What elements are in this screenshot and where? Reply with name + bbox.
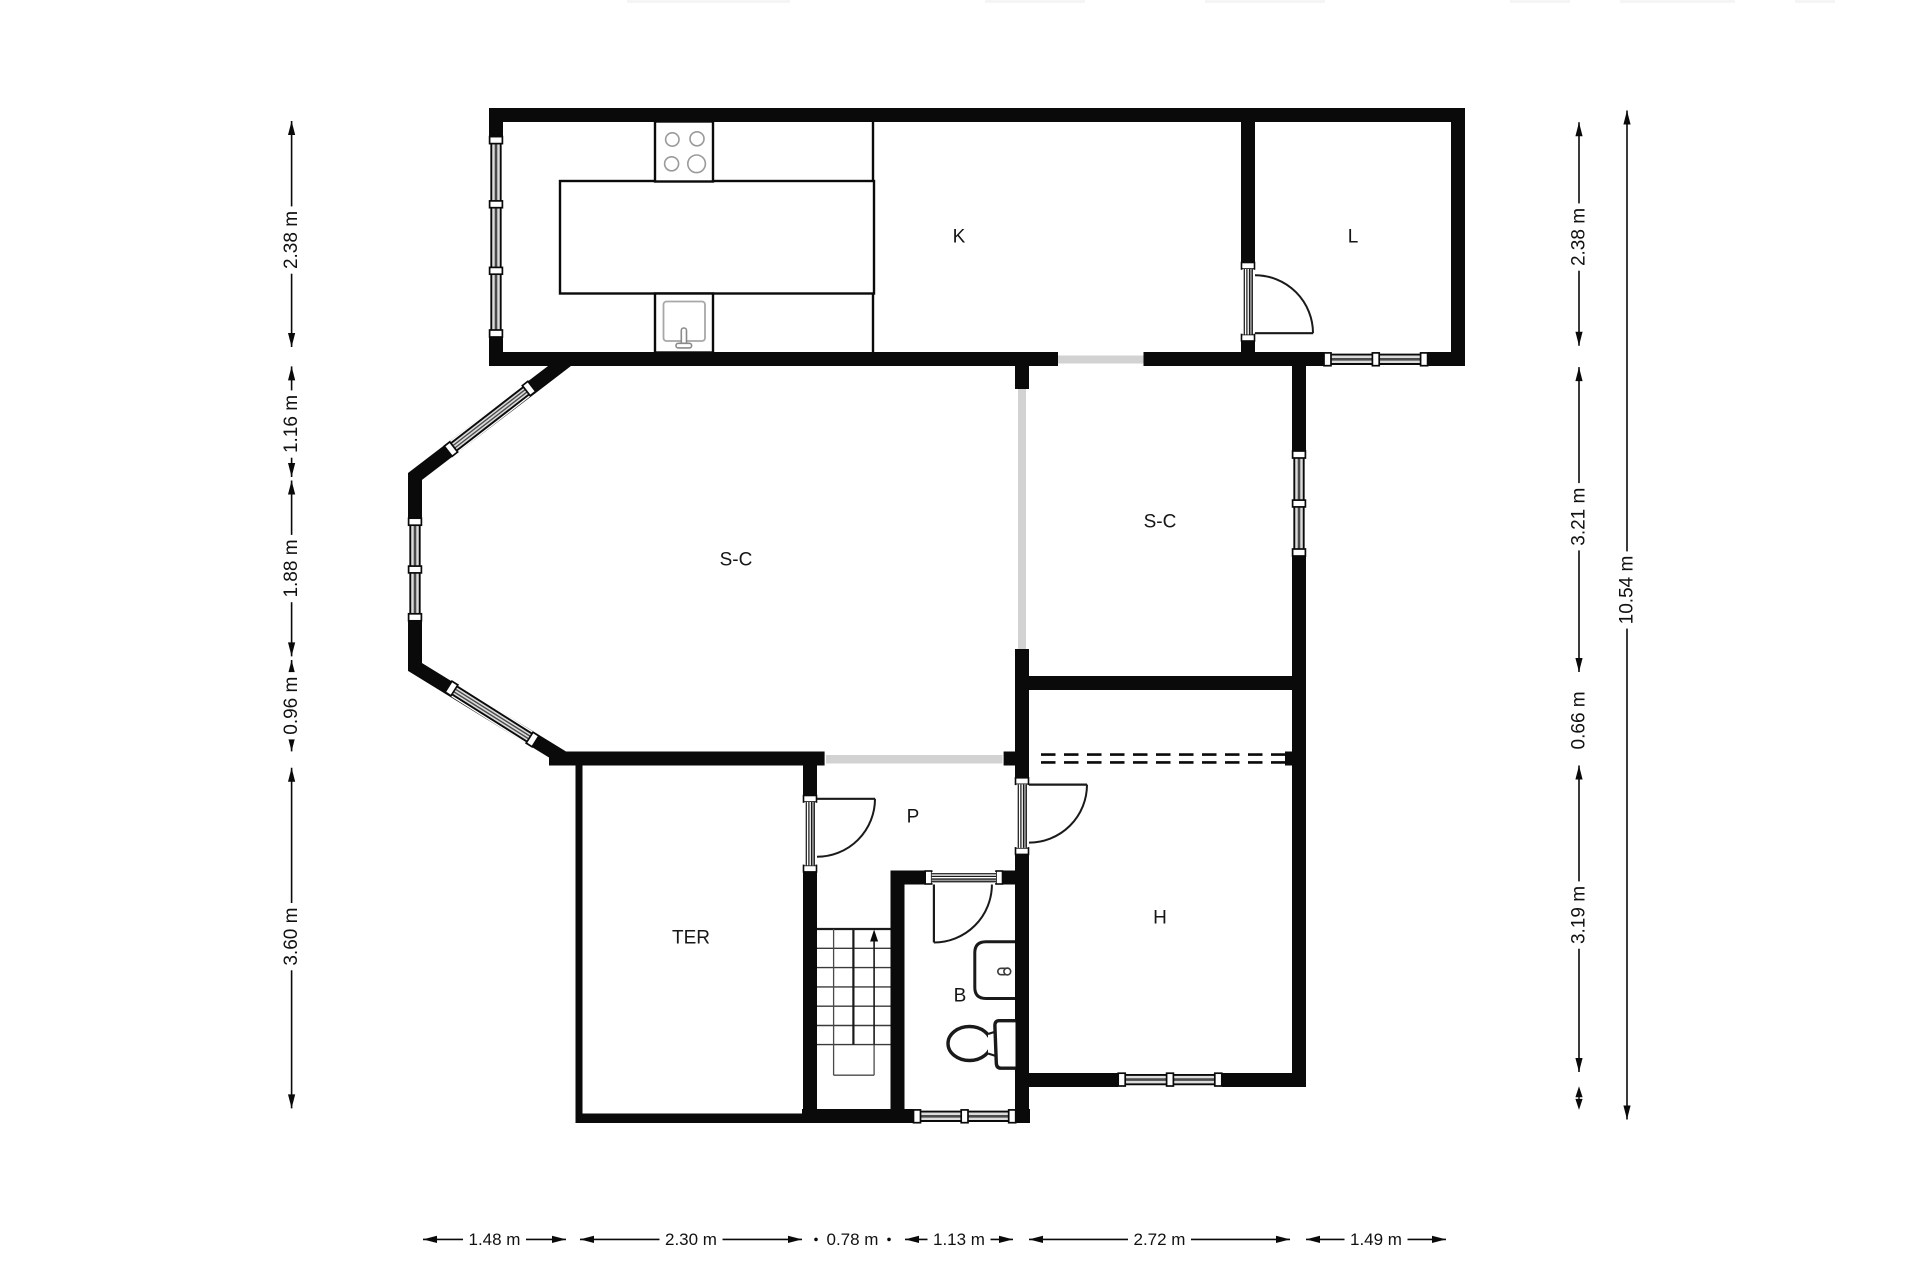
svg-text:L: L (1348, 227, 1359, 248)
svg-text:B: B (954, 986, 967, 1007)
svg-text:0.66 m: 0.66 m (1569, 691, 1590, 749)
svg-text:1.48 m: 1.48 m (469, 1230, 521, 1249)
svg-text:1.88 m: 1.88 m (281, 539, 302, 597)
svg-text:2.38 m: 2.38 m (1569, 208, 1590, 266)
svg-text:3.19 m: 3.19 m (1569, 886, 1590, 944)
svg-text:S-C: S-C (720, 550, 753, 571)
svg-text:1.49 m: 1.49 m (1350, 1230, 1402, 1249)
svg-text:1.16 m: 1.16 m (281, 395, 302, 453)
svg-text:2.38 m: 2.38 m (281, 211, 302, 269)
svg-text:3.21 m: 3.21 m (1569, 488, 1590, 546)
svg-text:0.78 m: 0.78 m (827, 1230, 879, 1249)
svg-text:TER: TER (672, 928, 710, 949)
svg-text:2.30 m: 2.30 m (665, 1230, 717, 1249)
svg-text:10.54 m: 10.54 m (1617, 556, 1638, 625)
svg-text:1.13 m: 1.13 m (933, 1230, 985, 1249)
svg-text:H: H (1153, 908, 1167, 929)
svg-text:2.72 m: 2.72 m (1134, 1230, 1186, 1249)
svg-text:0.96 m: 0.96 m (281, 677, 302, 735)
svg-text:K: K (953, 227, 966, 248)
svg-text:S-C: S-C (1144, 512, 1177, 533)
svg-text:3.60 m: 3.60 m (281, 908, 302, 966)
svg-text:P: P (907, 807, 920, 828)
